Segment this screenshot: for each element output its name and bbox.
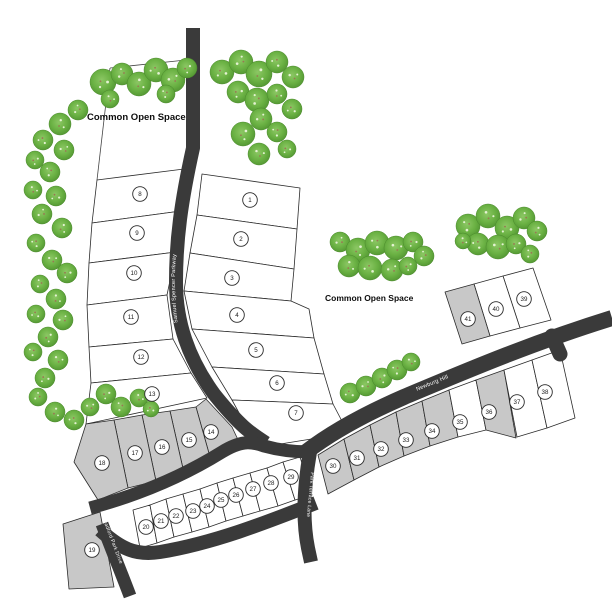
tree-icon — [527, 221, 547, 241]
lot-7-number: 7 — [294, 410, 298, 417]
lot-5-marker[interactable]: 5 — [249, 343, 264, 358]
lot-4-number: 4 — [235, 312, 239, 319]
lot-3-marker[interactable]: 3 — [225, 271, 240, 286]
lot-38-number: 38 — [542, 389, 549, 396]
tree-icon — [143, 401, 159, 417]
tree-icon — [54, 140, 74, 160]
tree-icon — [48, 350, 68, 370]
tree-icon — [358, 256, 382, 280]
lot-30-marker[interactable]: 30 — [326, 459, 341, 474]
lot-32-marker[interactable]: 32 — [374, 442, 389, 457]
lot-35-marker[interactable]: 35 — [453, 415, 468, 430]
lot-3-number: 3 — [230, 275, 234, 282]
lot-37-marker[interactable]: 37 — [510, 395, 525, 410]
lot-8-number: 8 — [138, 191, 142, 198]
lot-18-marker[interactable]: 18 — [95, 456, 110, 471]
tree-icon — [245, 88, 269, 112]
lot-2-number: 2 — [239, 236, 243, 243]
lot-22-marker[interactable]: 22 — [169, 509, 184, 524]
lot-6-number: 6 — [275, 380, 279, 387]
plat-svg: 1234567891011121314151617181920212223242… — [0, 0, 612, 612]
common-open-space-label: Common Open Space — [325, 293, 414, 303]
lot-15-marker[interactable]: 15 — [182, 433, 197, 448]
lot-1-number: 1 — [248, 197, 252, 204]
lot-33-marker[interactable]: 33 — [399, 433, 414, 448]
lot-20-marker[interactable]: 20 — [139, 520, 154, 535]
lot-36-number: 36 — [486, 409, 493, 416]
tree-icon — [278, 140, 296, 158]
tree-icon — [33, 130, 53, 150]
lot-34-number: 34 — [429, 428, 436, 435]
tree-icon — [27, 234, 45, 252]
lot-9-marker[interactable]: 9 — [130, 226, 145, 241]
lot-9-number: 9 — [135, 230, 139, 237]
lot-29-number: 29 — [288, 474, 295, 481]
lot-10-number: 10 — [131, 270, 138, 277]
tree-icon — [282, 99, 302, 119]
lot-30-number: 30 — [330, 463, 337, 470]
lot-31-marker[interactable]: 31 — [350, 451, 365, 466]
tree-icon — [68, 100, 88, 120]
tree-icon — [38, 327, 58, 347]
lot-24-marker[interactable]: 24 — [200, 499, 215, 514]
tree-icon — [81, 398, 99, 416]
lot-8-marker[interactable]: 8 — [133, 187, 148, 202]
lot-17-marker[interactable]: 17 — [128, 446, 143, 461]
lot-12-number: 12 — [138, 354, 145, 361]
lot-23-number: 23 — [190, 508, 197, 515]
tree-icon — [45, 402, 65, 422]
tree-icon — [31, 275, 49, 293]
tree-icon — [29, 388, 47, 406]
tree-icon — [399, 257, 417, 275]
lot-22-number: 22 — [173, 513, 180, 520]
lot-13-number: 13 — [149, 391, 156, 398]
tree-icon — [521, 245, 539, 263]
tree-icon — [111, 397, 131, 417]
lot-28-marker[interactable]: 28 — [264, 476, 279, 491]
lot-12-marker[interactable]: 12 — [134, 350, 149, 365]
lot-39-number: 39 — [521, 296, 528, 303]
lot-14-number: 14 — [208, 429, 215, 436]
lot-1-marker[interactable]: 1 — [243, 193, 258, 208]
lot-40-marker[interactable]: 40 — [489, 302, 504, 317]
lot-31-number: 31 — [354, 455, 361, 462]
lot-19-marker[interactable]: 19 — [85, 543, 100, 558]
tree-icon — [24, 181, 42, 199]
tree-icon — [52, 218, 72, 238]
lot-26-marker[interactable]: 26 — [229, 488, 244, 503]
lot-41-marker[interactable]: 41 — [461, 312, 476, 327]
lot-14-marker[interactable]: 14 — [204, 425, 219, 440]
lot-19-number: 19 — [89, 547, 96, 554]
common-open-space-label: Common Open Space — [87, 112, 186, 123]
lot-18-number: 18 — [99, 460, 106, 467]
lot-35-number: 35 — [457, 419, 464, 426]
lot-11-number: 11 — [128, 314, 135, 321]
tree-icon — [53, 310, 73, 330]
tree-icon — [455, 233, 471, 249]
lot-4-marker[interactable]: 4 — [230, 308, 245, 323]
lot-28-number: 28 — [268, 480, 275, 487]
lot-26-number: 26 — [233, 492, 240, 499]
lot-11-marker[interactable]: 11 — [124, 310, 139, 325]
lot-41-number: 41 — [465, 316, 472, 323]
lot-2-marker[interactable]: 2 — [234, 232, 249, 247]
lot-16-number: 16 — [159, 444, 166, 451]
lot-5-number: 5 — [254, 347, 258, 354]
tree-icon — [40, 162, 60, 182]
lot-21-marker[interactable]: 21 — [154, 514, 169, 529]
tree-icon — [402, 353, 420, 371]
tree-icon — [267, 84, 287, 104]
lot-13-marker[interactable]: 13 — [145, 387, 160, 402]
lot-37-number: 37 — [514, 399, 521, 406]
lot-20-number: 20 — [143, 524, 150, 531]
lot-27-marker[interactable]: 27 — [246, 482, 261, 497]
tree-icon — [49, 113, 71, 135]
lot-34-marker[interactable]: 34 — [425, 424, 440, 439]
tree-icon — [24, 343, 42, 361]
lot-27-number: 27 — [250, 486, 257, 493]
lot-6-marker[interactable]: 6 — [270, 376, 285, 391]
tree-icon — [157, 85, 175, 103]
lot-32-number: 32 — [378, 446, 385, 453]
lot-24-number: 24 — [204, 503, 211, 510]
tree-icon — [46, 186, 66, 206]
lot-40-number: 40 — [493, 306, 500, 313]
lot-21-number: 21 — [158, 518, 165, 525]
tree-icon — [64, 410, 84, 430]
lot-38-marker[interactable]: 38 — [538, 385, 553, 400]
site-plan-map: 1234567891011121314151617181920212223242… — [0, 0, 612, 612]
tree-icon — [177, 58, 197, 78]
lot-17-number: 17 — [132, 450, 139, 457]
lot-25-marker[interactable]: 25 — [214, 493, 229, 508]
tree-icon — [32, 204, 52, 224]
lot-39-marker[interactable]: 39 — [517, 292, 532, 307]
lot-10-marker[interactable]: 10 — [127, 266, 142, 281]
tree-icon — [26, 151, 44, 169]
tree-icon — [231, 122, 255, 146]
lot-23-marker[interactable]: 23 — [186, 504, 201, 519]
tree-icon — [46, 289, 66, 309]
road-newburg-stub — [552, 336, 560, 354]
tree-icon — [414, 246, 434, 266]
tree-icon — [27, 305, 45, 323]
lot-25-number: 25 — [218, 497, 225, 504]
lot-33-number: 33 — [403, 437, 410, 444]
tree-icon — [267, 122, 287, 142]
lot-16-marker[interactable]: 16 — [155, 440, 170, 455]
lot-36-marker[interactable]: 36 — [482, 405, 497, 420]
lot-7-marker[interactable]: 7 — [289, 406, 304, 421]
tree-icon — [57, 263, 77, 283]
lot-29-marker[interactable]: 29 — [284, 470, 299, 485]
tree-icon — [35, 368, 55, 388]
tree-icon — [248, 143, 270, 165]
tree-icon — [338, 255, 360, 277]
lot-15-number: 15 — [186, 437, 193, 444]
tree-icon — [101, 90, 119, 108]
tree-icon — [282, 66, 304, 88]
